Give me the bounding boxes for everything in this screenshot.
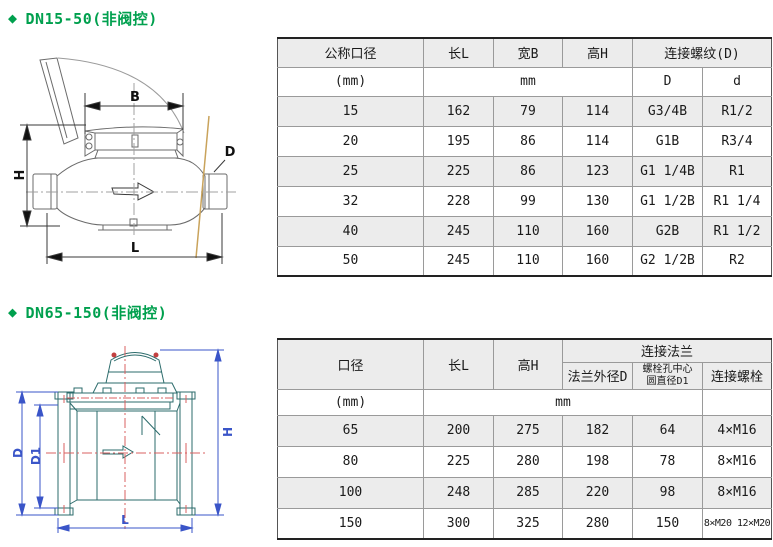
table-row-dn32: 32 228 99 130 G1 1/2B R1 1/4 (278, 186, 772, 216)
table-row-dn25: 25 225 86 123 G1 1/4B R1 (278, 156, 772, 186)
meter-lid (40, 58, 78, 144)
unit-nominal: (mm) (278, 67, 424, 96)
dn15-50-meter-drawing: B H D L (8, 38, 270, 296)
table-row-dn15: 15 162 79 114 G3/4B R1/2 (278, 96, 772, 126)
cell-L: 245 (424, 216, 494, 246)
col-header-thread-d: d (703, 67, 772, 96)
cell-L: 200 (424, 415, 494, 446)
diamond-bullet-icon: ◆ (8, 11, 18, 26)
cell-thread-D: G3/4B (633, 96, 703, 126)
datasheet-page: ◆ DN15-50(非阀控) (0, 0, 773, 547)
dim-label-D: D (225, 145, 236, 160)
cell-bolt-circle: 98 (633, 477, 703, 508)
col-header-thread-group: 连接螺纹(D) (633, 38, 772, 67)
cell-dn: 50 (278, 246, 424, 276)
unit-dims: mm (424, 67, 633, 96)
lid-swing-arc (58, 58, 184, 133)
cell-dn: 40 (278, 216, 424, 246)
cell-B: 86 (494, 126, 563, 156)
cell-flange-od: 280 (563, 508, 633, 539)
cell-flange-od: 220 (563, 477, 633, 508)
cell-H: 123 (563, 156, 633, 186)
dim-label-L: L (131, 241, 139, 256)
cell-L: 225 (424, 156, 494, 186)
dome-bolt (112, 353, 117, 358)
cell-B: 110 (494, 246, 563, 276)
section2-title-text: DN65-150(非阀控) (26, 302, 168, 323)
col-header-flange-group: 连接法兰 (563, 339, 772, 362)
cell-thread-D: G2B (633, 216, 703, 246)
cell-H: 280 (494, 446, 563, 477)
cell-B: 86 (494, 156, 563, 186)
internal-vane (142, 416, 160, 435)
cell-bolt-circle: 150 (633, 508, 703, 539)
cell-L: 195 (424, 126, 494, 156)
cell-L: 162 (424, 96, 494, 126)
table-row-dn150: 150 300 325 280 150 8×M20 12×M20 (278, 508, 772, 539)
col-header-bolt-circle: 螺栓孔中心 圆直径D1 (633, 362, 703, 389)
dn65-150-dimensions-table: 口径 长L 高H 连接法兰 法兰外径D 螺栓孔中心 圆直径D1 连接螺栓 (mm… (277, 338, 772, 540)
col-header-flange-od: 法兰外径D (563, 362, 633, 389)
cell-thread-D: G1B (633, 126, 703, 156)
dim-label-L: L (121, 513, 129, 527)
cell-thread-D: G1 1/4B (633, 156, 703, 186)
dim-label-H: H (221, 427, 235, 437)
table-row-dn65: 65 200 275 182 64 4×M16 (278, 415, 772, 446)
cell-dn: 150 (278, 508, 424, 539)
unit-dims: mm (424, 389, 703, 415)
cell-dn: 65 (278, 415, 424, 446)
table-row-dn20: 20 195 86 114 G1B R3/4 (278, 126, 772, 156)
dim-label-D: D (11, 448, 25, 458)
unit-nominal: (mm) (278, 389, 424, 415)
dim-label-H: H (13, 170, 28, 181)
col-header-bolts: 连接螺栓 (703, 362, 772, 389)
table-row-dn100: 100 248 285 220 98 8×M16 (278, 477, 772, 508)
cell-thread-d: R3/4 (703, 126, 772, 156)
section2-title: ◆ DN65-150(非阀控) (8, 302, 167, 323)
cell-H: 325 (494, 508, 563, 539)
col-header-length: 长L (424, 339, 494, 389)
cell-L: 225 (424, 446, 494, 477)
dim-label-B: B (130, 90, 140, 105)
cell-H: 275 (494, 415, 563, 446)
cell-H: 114 (563, 126, 633, 156)
cell-thread-d: R2 (703, 246, 772, 276)
table-row-dn80: 80 225 280 198 78 8×M16 (278, 446, 772, 477)
section1-title-text: DN15-50(非阀控) (26, 8, 158, 29)
cell-H: 114 (563, 96, 633, 126)
cell-H: 285 (494, 477, 563, 508)
unit-empty (703, 389, 772, 415)
cell-H: 160 (563, 246, 633, 276)
flow-arrow (103, 446, 133, 458)
cell-L: 248 (424, 477, 494, 508)
diamond-bullet-icon: ◆ (8, 305, 18, 320)
cell-thread-d: R1 1/2 (703, 216, 772, 246)
cell-bolts: 8×M16 (703, 446, 772, 477)
cell-dn: 100 (278, 477, 424, 508)
cell-H: 130 (563, 186, 633, 216)
cell-dn: 25 (278, 156, 424, 186)
cell-dn: 80 (278, 446, 424, 477)
cell-bolt-circle: 64 (633, 415, 703, 446)
col-header-height: 高H (563, 38, 633, 67)
bolt-circle-line1: 螺栓孔中心 (633, 364, 702, 376)
cell-bolts: 8×M16 (703, 477, 772, 508)
cell-flange-od: 182 (563, 415, 633, 446)
cell-flange-od: 198 (563, 446, 633, 477)
section1-title: ◆ DN15-50(非阀控) (8, 8, 158, 29)
cell-thread-d: R1 (703, 156, 772, 186)
col-header-nominal-diameter: 口径 (278, 339, 424, 389)
cell-bolt-circle: 78 (633, 446, 703, 477)
cell-dn: 15 (278, 96, 424, 126)
dim-D-leader (214, 160, 225, 172)
cell-thread-D: G1 1/2B (633, 186, 703, 216)
cell-B: 79 (494, 96, 563, 126)
cell-H: 160 (563, 216, 633, 246)
tan-diagonal-line (196, 116, 209, 258)
table-row-dn50: 50 245 110 160 G2 1/2B R2 (278, 246, 772, 276)
col-header-height: 高H (494, 339, 563, 389)
cell-thread-d: R1 1/4 (703, 186, 772, 216)
cell-bolts: 8×M20 12×M20 (703, 508, 772, 539)
cell-dn: 32 (278, 186, 424, 216)
cell-thread-D: G2 1/2B (633, 246, 703, 276)
col-header-width: 宽B (494, 38, 563, 67)
col-header-thread-D: D (633, 67, 703, 96)
cell-L: 245 (424, 246, 494, 276)
table-row-dn40: 40 245 110 160 G2B R1 1/2 (278, 216, 772, 246)
cell-B: 99 (494, 186, 563, 216)
col-header-length: 长L (424, 38, 494, 67)
cell-L: 300 (424, 508, 494, 539)
cell-dn: 20 (278, 126, 424, 156)
cell-bolts: 4×M16 (703, 415, 772, 446)
dim-label-D1: D1 (29, 447, 43, 465)
dn15-50-dimensions-table: 公称口径 长L 宽B 高H 连接螺纹(D) (mm) mm D d 15 162… (277, 37, 772, 277)
dome-bolt (154, 353, 159, 358)
bolt-circle-line2: 圆直径D1 (633, 376, 702, 388)
dn65-150-meter-drawing: D D1 H L (8, 343, 270, 543)
cell-B: 110 (494, 216, 563, 246)
cell-L: 228 (424, 186, 494, 216)
col-header-nominal-diameter: 公称口径 (278, 38, 424, 67)
cell-thread-d: R1/2 (703, 96, 772, 126)
